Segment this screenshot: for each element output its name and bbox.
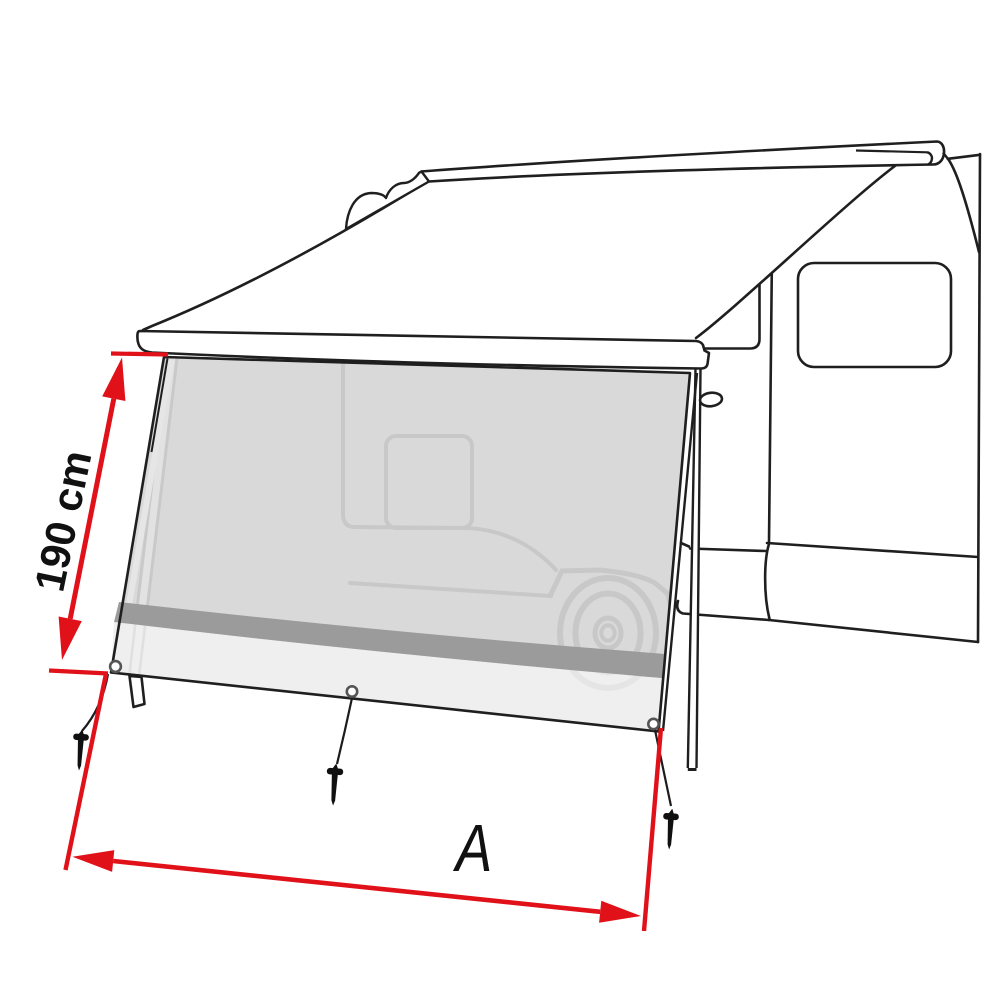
svg-text:A: A bbox=[452, 811, 492, 885]
